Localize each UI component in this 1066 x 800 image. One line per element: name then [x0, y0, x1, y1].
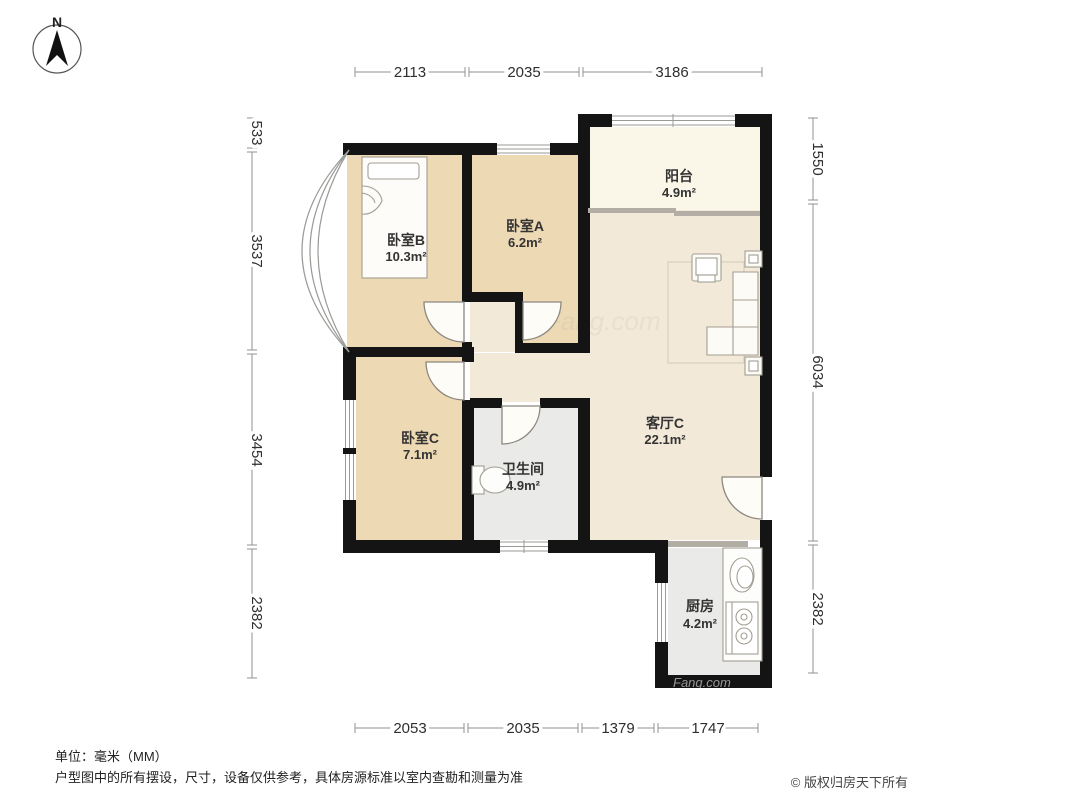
window-bedroom-a-top	[497, 143, 550, 155]
balcony-slider-right	[674, 211, 760, 216]
side-table-bottom	[745, 357, 762, 375]
copyright-text: © 版权归房天下所有	[791, 772, 908, 791]
window-bedroom-c-left-upper	[343, 400, 356, 448]
window-bedroom-c-left-lower	[343, 454, 356, 500]
dimension-line-right	[808, 118, 818, 673]
label-bedroom-b: 卧室B	[387, 232, 425, 248]
floor-plan-page: N 2113 2035 3186 2053 2035 1379 1747 533…	[0, 0, 1066, 800]
compass-north-label: N	[52, 14, 62, 30]
armchair-seat	[696, 258, 717, 275]
dim-top-3: 3186	[655, 64, 688, 81]
label-kitchen: 厨房	[686, 598, 714, 614]
area-bedroom-c: 7.1m²	[403, 447, 438, 462]
unit-label: 单位：毫米（MM）	[55, 746, 168, 765]
table-inner	[749, 255, 758, 263]
area-bedroom-a: 6.2m²	[508, 235, 543, 250]
armchair	[692, 254, 721, 282]
bay-window-arc-outer	[302, 150, 349, 352]
label-bathroom: 卫生间	[502, 461, 544, 477]
sink-basin	[737, 566, 753, 588]
bay-window-arc-inner	[318, 150, 349, 352]
dim-right-2: 6034	[809, 355, 826, 388]
dim-left-3: 3454	[248, 433, 265, 466]
room-floor-corridor	[470, 353, 590, 402]
side-table-top	[745, 251, 762, 267]
label-bedroom-a: 卧室A	[506, 218, 544, 234]
dim-right-3: 2382	[809, 592, 826, 625]
floor-plan-canvas: N 2113 2035 3186 2053 2035 1379 1747 533…	[0, 0, 1066, 800]
bed-pillow	[368, 163, 419, 179]
bay-window-arc-middle	[310, 150, 349, 352]
dim-bottom-3: 1379	[601, 720, 634, 737]
watermark: Fang.com	[545, 306, 661, 336]
label-living-room: 客厅C	[645, 415, 684, 431]
dim-left-1: 533	[248, 120, 265, 145]
dim-left-2: 3537	[248, 234, 265, 267]
compass: N	[33, 14, 81, 73]
window-glass-lines	[500, 540, 548, 553]
disclaimer-text: 户型图中的所有摆设，尺寸，设备仅供参考，具体房源标准以室内查勘和测量为准	[55, 767, 523, 786]
area-kitchen: 4.2m²	[683, 616, 718, 631]
window-glass-lines	[612, 114, 735, 127]
dim-right-1: 1550	[809, 142, 826, 175]
dim-top-1: 2113	[394, 64, 426, 81]
window-kitchen-left	[655, 583, 668, 642]
label-balcony: 阳台	[665, 168, 693, 184]
dim-bottom-1: 2053	[393, 720, 426, 737]
dimension-line-left	[247, 118, 257, 678]
stove-burner-1-center	[741, 614, 747, 620]
table-inner	[749, 361, 758, 371]
room-floor-vestibule	[470, 302, 515, 352]
dim-top-2: 2035	[507, 64, 540, 81]
area-bedroom-b: 10.3m²	[385, 249, 427, 264]
balcony-slider-left	[588, 208, 676, 213]
compass-needle-icon	[46, 30, 68, 66]
armchair-front	[698, 275, 715, 282]
stove-burner-2-center	[741, 633, 747, 639]
window-bathroom-bottom	[500, 540, 548, 553]
watermark: Fang.com	[673, 675, 731, 690]
area-bathroom: 4.9m²	[506, 478, 541, 493]
label-bedroom-c: 卧室C	[401, 430, 439, 446]
bay-window	[302, 150, 349, 352]
window-balcony-top	[612, 114, 735, 127]
area-balcony: 4.9m²	[662, 185, 697, 200]
kitchen-counter	[723, 548, 762, 661]
area-living-room: 22.1m²	[644, 432, 686, 447]
dim-bottom-2: 2035	[506, 720, 539, 737]
dim-bottom-4: 1747	[691, 720, 724, 737]
dim-left-4: 2382	[248, 596, 265, 629]
kitchen-threshold	[668, 541, 748, 547]
